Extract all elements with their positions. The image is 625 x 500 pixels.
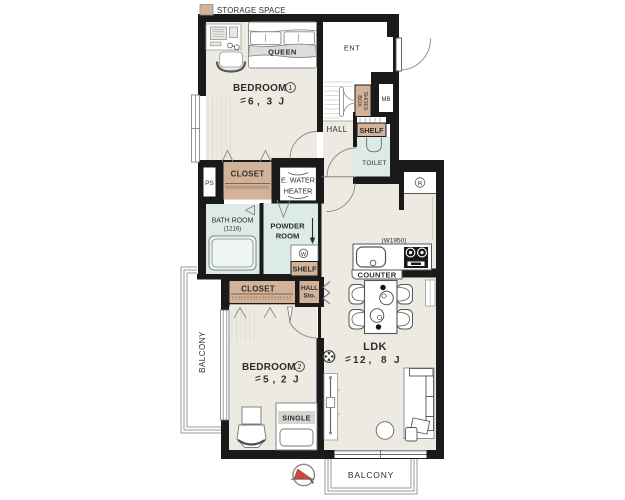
svg-text:MB: MB	[382, 97, 391, 103]
svg-text:ENT: ENT	[344, 44, 360, 53]
svg-text:(W1950): (W1950)	[382, 238, 407, 245]
svg-text:BALCONY: BALCONY	[198, 331, 207, 373]
svg-text:TOILET: TOILET	[362, 160, 387, 167]
svg-text:J: J	[279, 97, 285, 108]
svg-text:2: 2	[281, 375, 287, 386]
svg-text:HALL: HALL	[301, 285, 318, 292]
svg-text:BEDROOM: BEDROOM	[233, 83, 287, 94]
svg-text:BATH ROOM: BATH ROOM	[212, 218, 254, 225]
svg-text:,: ,	[273, 375, 276, 386]
svg-text:2: 2	[298, 364, 302, 371]
svg-text:SHELF: SHELF	[360, 126, 384, 135]
svg-text:J: J	[394, 355, 400, 366]
svg-text:BALCONY: BALCONY	[348, 470, 394, 480]
svg-text:,: ,	[257, 97, 260, 108]
svg-text:LDK: LDK	[363, 341, 387, 353]
svg-text:COUNTER: COUNTER	[358, 270, 397, 279]
svg-text:QUEEN: QUEEN	[268, 47, 297, 56]
svg-text:R: R	[418, 180, 423, 187]
svg-text:(1216): (1216)	[224, 227, 241, 233]
svg-text:5: 5	[263, 375, 269, 386]
svg-text:BEDROOM: BEDROOM	[242, 362, 296, 373]
svg-text:STORAGE SPACE: STORAGE SPACE	[217, 6, 286, 15]
svg-text:E. WATER: E. WATER	[281, 176, 315, 185]
svg-text:HEATER: HEATER	[284, 187, 313, 196]
svg-text:PS: PS	[205, 180, 214, 187]
svg-text:1: 1	[289, 85, 293, 92]
svg-text:W: W	[301, 252, 307, 258]
svg-text:6: 6	[248, 97, 254, 108]
svg-text:POWDER: POWDER	[270, 222, 305, 231]
svg-text:SINGLE: SINGLE	[282, 414, 311, 423]
svg-text:CLOSET: CLOSET	[241, 285, 275, 294]
svg-text:2: 2	[360, 355, 366, 366]
svg-text:SHELF: SHELF	[293, 265, 317, 274]
svg-text:1: 1	[353, 355, 359, 366]
svg-text:8: 8	[381, 355, 387, 366]
svg-text:HALL: HALL	[326, 125, 347, 134]
svg-text:Sto.: Sto.	[303, 293, 315, 300]
svg-text:CLOSET: CLOSET	[231, 170, 265, 179]
svg-text:3: 3	[267, 97, 273, 108]
svg-text:BOX: BOX	[356, 95, 362, 107]
svg-text:,: ,	[369, 355, 372, 366]
svg-text:ROOM: ROOM	[276, 232, 300, 241]
svg-text:J: J	[293, 375, 299, 386]
